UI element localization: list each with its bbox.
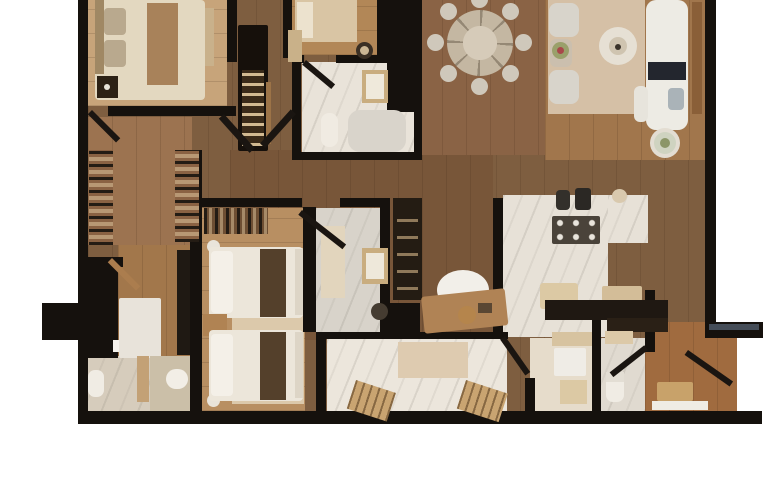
living-console	[692, 2, 702, 114]
dining-table	[447, 10, 513, 76]
wall-bedroom2-top-a	[202, 198, 302, 207]
vanity-desk-item	[478, 303, 492, 313]
dining-chair	[427, 34, 444, 51]
hall-cabinet-shelves	[397, 210, 418, 290]
kitchen-cooktop	[552, 216, 600, 244]
kitchen-tray	[602, 286, 642, 301]
dining-chair	[471, 78, 488, 95]
master-nightstand-lamp	[104, 84, 110, 90]
living-sofa-chaise	[634, 86, 648, 122]
closet-rail-left	[89, 150, 113, 245]
living-armchair	[549, 3, 579, 37]
living-armchair	[549, 70, 579, 104]
toilet-room-mat	[605, 331, 633, 344]
vanity-desk-plate	[458, 306, 476, 324]
master-bed-headboard	[95, 0, 104, 74]
bath-left-sink	[166, 369, 188, 389]
living-flowers-accent	[557, 47, 564, 54]
laundry-washer	[554, 348, 586, 376]
kitchen-table-dark	[545, 300, 668, 320]
laundry-counter	[552, 332, 592, 346]
kitchen-coffee-maker	[575, 188, 591, 210]
bedroom2-bed-b-foot	[295, 332, 303, 398]
bath-top-tub	[321, 113, 338, 147]
wall-laundry-divider	[592, 320, 601, 411]
wall-smallbed-right	[377, 0, 387, 62]
kitchen-kettle	[556, 190, 570, 210]
wall-bedroom2-top-b	[340, 198, 390, 207]
wall-bath-right	[414, 110, 422, 154]
master-bed-bench	[205, 8, 214, 66]
dining-chair	[502, 3, 519, 20]
wall-masterbath-top	[316, 332, 508, 339]
corridor-cabinet-white	[119, 298, 161, 358]
kitchen-table-dark-side	[607, 318, 668, 332]
dining-chair	[440, 65, 457, 82]
powder-toilet	[371, 303, 388, 320]
wall-elevator-block	[42, 303, 80, 340]
powder-mirror	[366, 253, 384, 279]
master-bed-pillow	[104, 40, 126, 67]
core-door-notch	[113, 340, 119, 352]
entry-mat	[652, 401, 708, 410]
bedroom2-bed-a-pillow	[211, 251, 233, 313]
living-coffee-item	[615, 44, 621, 50]
corridor-wardrobe	[177, 250, 190, 355]
bath-left-toilet	[88, 370, 104, 397]
wall-powder-chunk	[383, 303, 420, 333]
wall-bath-bottom	[292, 152, 422, 160]
living-plant-core	[660, 138, 670, 148]
bath-left-divider	[137, 356, 149, 402]
bedroom2-bed-a-runner	[260, 249, 286, 317]
bath-top-towel-pile	[348, 110, 406, 152]
wall-outer-bottom	[78, 411, 762, 424]
entry-bench	[657, 382, 693, 401]
floor-plan-image	[0, 0, 770, 483]
kitchen-canister	[612, 189, 627, 203]
living-sofa-throw	[648, 62, 686, 80]
bedroom2-bed-a-foot	[295, 249, 303, 315]
wall-bath-left	[292, 63, 301, 155]
wall-masterbed-right	[227, 0, 237, 62]
wall-stub-cap	[709, 324, 759, 330]
wall-masterbath-left	[316, 332, 326, 411]
dining-chair	[440, 3, 457, 20]
laundry-cabinet	[560, 380, 587, 404]
bath-top-mirror	[366, 74, 384, 99]
masterbath-rug	[398, 342, 468, 378]
bedroom2-bed-b-runner	[260, 332, 286, 400]
wall-outer-right	[705, 0, 716, 332]
master-bed-runner	[147, 3, 178, 85]
closet-rail-bedroom2	[204, 208, 268, 234]
small-room-art	[288, 30, 302, 62]
closet-rail-right	[175, 150, 199, 242]
bar-cabinet-bottles	[242, 70, 264, 146]
living-sofa-pillow	[668, 88, 684, 110]
dining-chair	[502, 65, 519, 82]
wall-masterbed-bottom	[108, 106, 236, 116]
wall-masterbath-door-jamb	[525, 378, 535, 411]
master-bed-pillow	[104, 8, 126, 35]
wall-bath-top-block	[387, 0, 422, 112]
floor-kitchen-counter	[608, 195, 648, 243]
small-room-stool-top	[360, 46, 369, 55]
bedroom2-bed-b-pillow	[211, 334, 233, 396]
dining-chair	[515, 34, 532, 51]
